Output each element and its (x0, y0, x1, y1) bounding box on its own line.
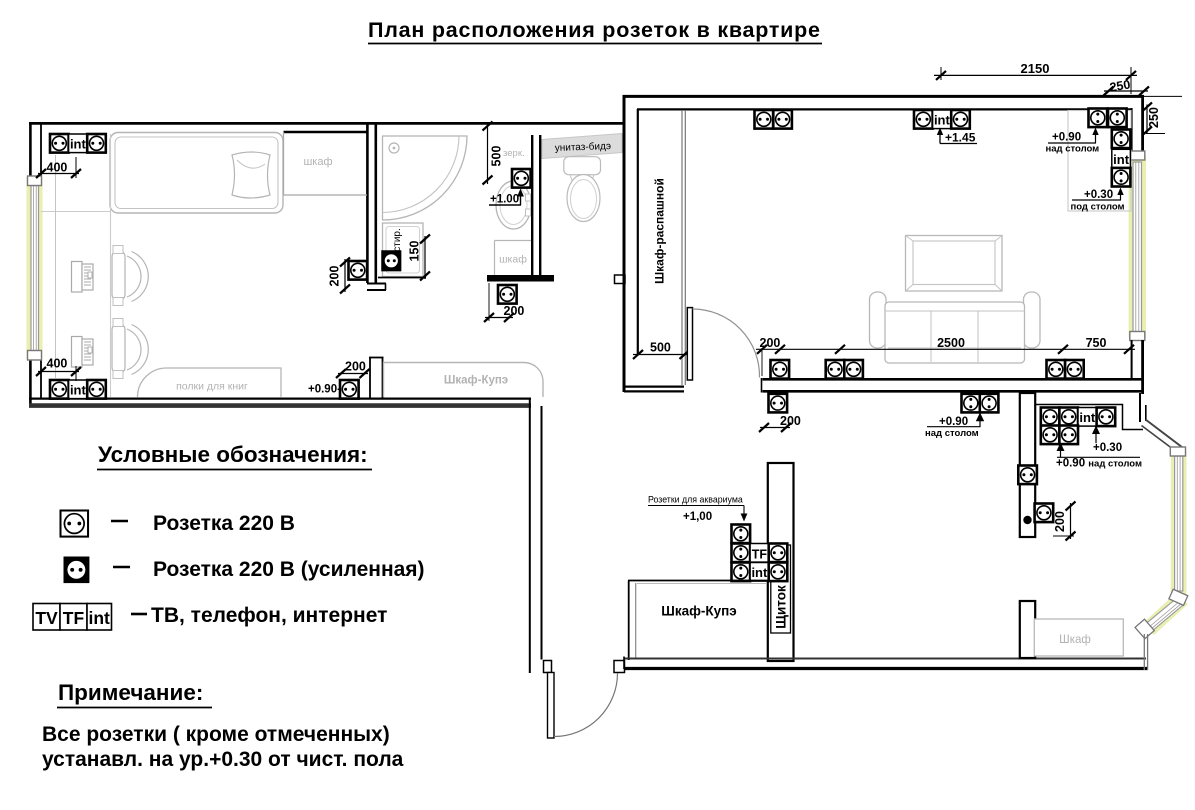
svg-text:400: 400 (47, 161, 68, 175)
svg-text:Шкаф-Купэ: Шкаф-Купэ (444, 375, 508, 387)
svg-text:Шкаф-Купэ: Шкаф-Купэ (661, 604, 737, 619)
svg-text:150: 150 (408, 241, 422, 262)
svg-text:+0.90-: +0.90- (308, 384, 341, 396)
svg-text:+1.00: +1.00 (490, 194, 519, 206)
svg-text:Розетка 220 В (усиленная): Розетка 220 В (усиленная) (153, 558, 425, 581)
svg-text:250: 250 (1109, 77, 1132, 94)
svg-text:Щиток: Щиток (774, 585, 789, 629)
svg-text:+0.30: +0.30 (1093, 442, 1122, 454)
svg-text:ТВ, телефон, интернет: ТВ, телефон, интернет (151, 604, 387, 627)
svg-text:200: 200 (504, 304, 525, 318)
svg-text:Розетка 220 В: Розетка 220 В (153, 512, 295, 535)
svg-text:200: 200 (345, 360, 366, 374)
svg-text:+0.30: +0.30 (1084, 189, 1113, 201)
svg-text:+1,00: +1,00 (683, 511, 712, 523)
svg-text:План расположения розеток в кв: План расположения розеток в квартире (368, 18, 820, 42)
svg-text:зерк.: зерк. (503, 148, 525, 159)
svg-text:над столом: над столом (925, 428, 979, 439)
svg-text:Все розетки ( кроме отмеченны: Все розетки ( кроме отмеченных) (42, 723, 390, 746)
svg-text:Условные обозначения:: Условные обозначения: (98, 442, 368, 467)
svg-text:+0.90 над столом: +0.90 над столом (1056, 458, 1142, 470)
svg-text:TV: TV (35, 608, 58, 628)
svg-text:над столом: над столом (1046, 144, 1100, 155)
svg-text:2500: 2500 (937, 336, 965, 350)
svg-text:500: 500 (490, 146, 504, 167)
svg-text:750: 750 (1086, 336, 1107, 350)
svg-text:Розетки для аквариума: Розетки для аквариума (648, 495, 743, 505)
svg-text:под столом: под столом (1071, 202, 1125, 213)
svg-text:TF: TF (752, 547, 768, 561)
svg-text:200: 200 (1053, 511, 1067, 532)
svg-text:400: 400 (47, 357, 68, 371)
svg-text:250: 250 (1147, 107, 1161, 128)
svg-text:500: 500 (650, 341, 671, 355)
svg-text:int: int (89, 608, 111, 628)
svg-text:шкаф: шкаф (499, 254, 527, 266)
svg-text:200: 200 (328, 266, 342, 287)
svg-text:+1.45: +1.45 (945, 131, 976, 145)
svg-text:2150: 2150 (1021, 61, 1050, 76)
svg-text:Шкаф: Шкаф (1059, 634, 1091, 646)
svg-text:устанавл. на ур.+0.30 от чист: устанавл. на ур.+0.30 от чист. пола (42, 748, 404, 771)
svg-text:стир.: стир. (392, 228, 403, 252)
svg-text:унитаз-бидэ: унитаз-бидэ (555, 140, 612, 154)
svg-text:TF: TF (63, 608, 85, 628)
svg-text:200: 200 (780, 414, 801, 428)
svg-text:полки для книг: полки для книг (176, 381, 248, 393)
svg-text:шкаф: шкаф (303, 156, 332, 168)
svg-text:Шкаф-распашной: Шкаф-распашной (653, 178, 667, 284)
svg-text:Примечание:: Примечание: (58, 680, 203, 705)
svg-text:+0.90: +0.90 (1052, 132, 1081, 144)
